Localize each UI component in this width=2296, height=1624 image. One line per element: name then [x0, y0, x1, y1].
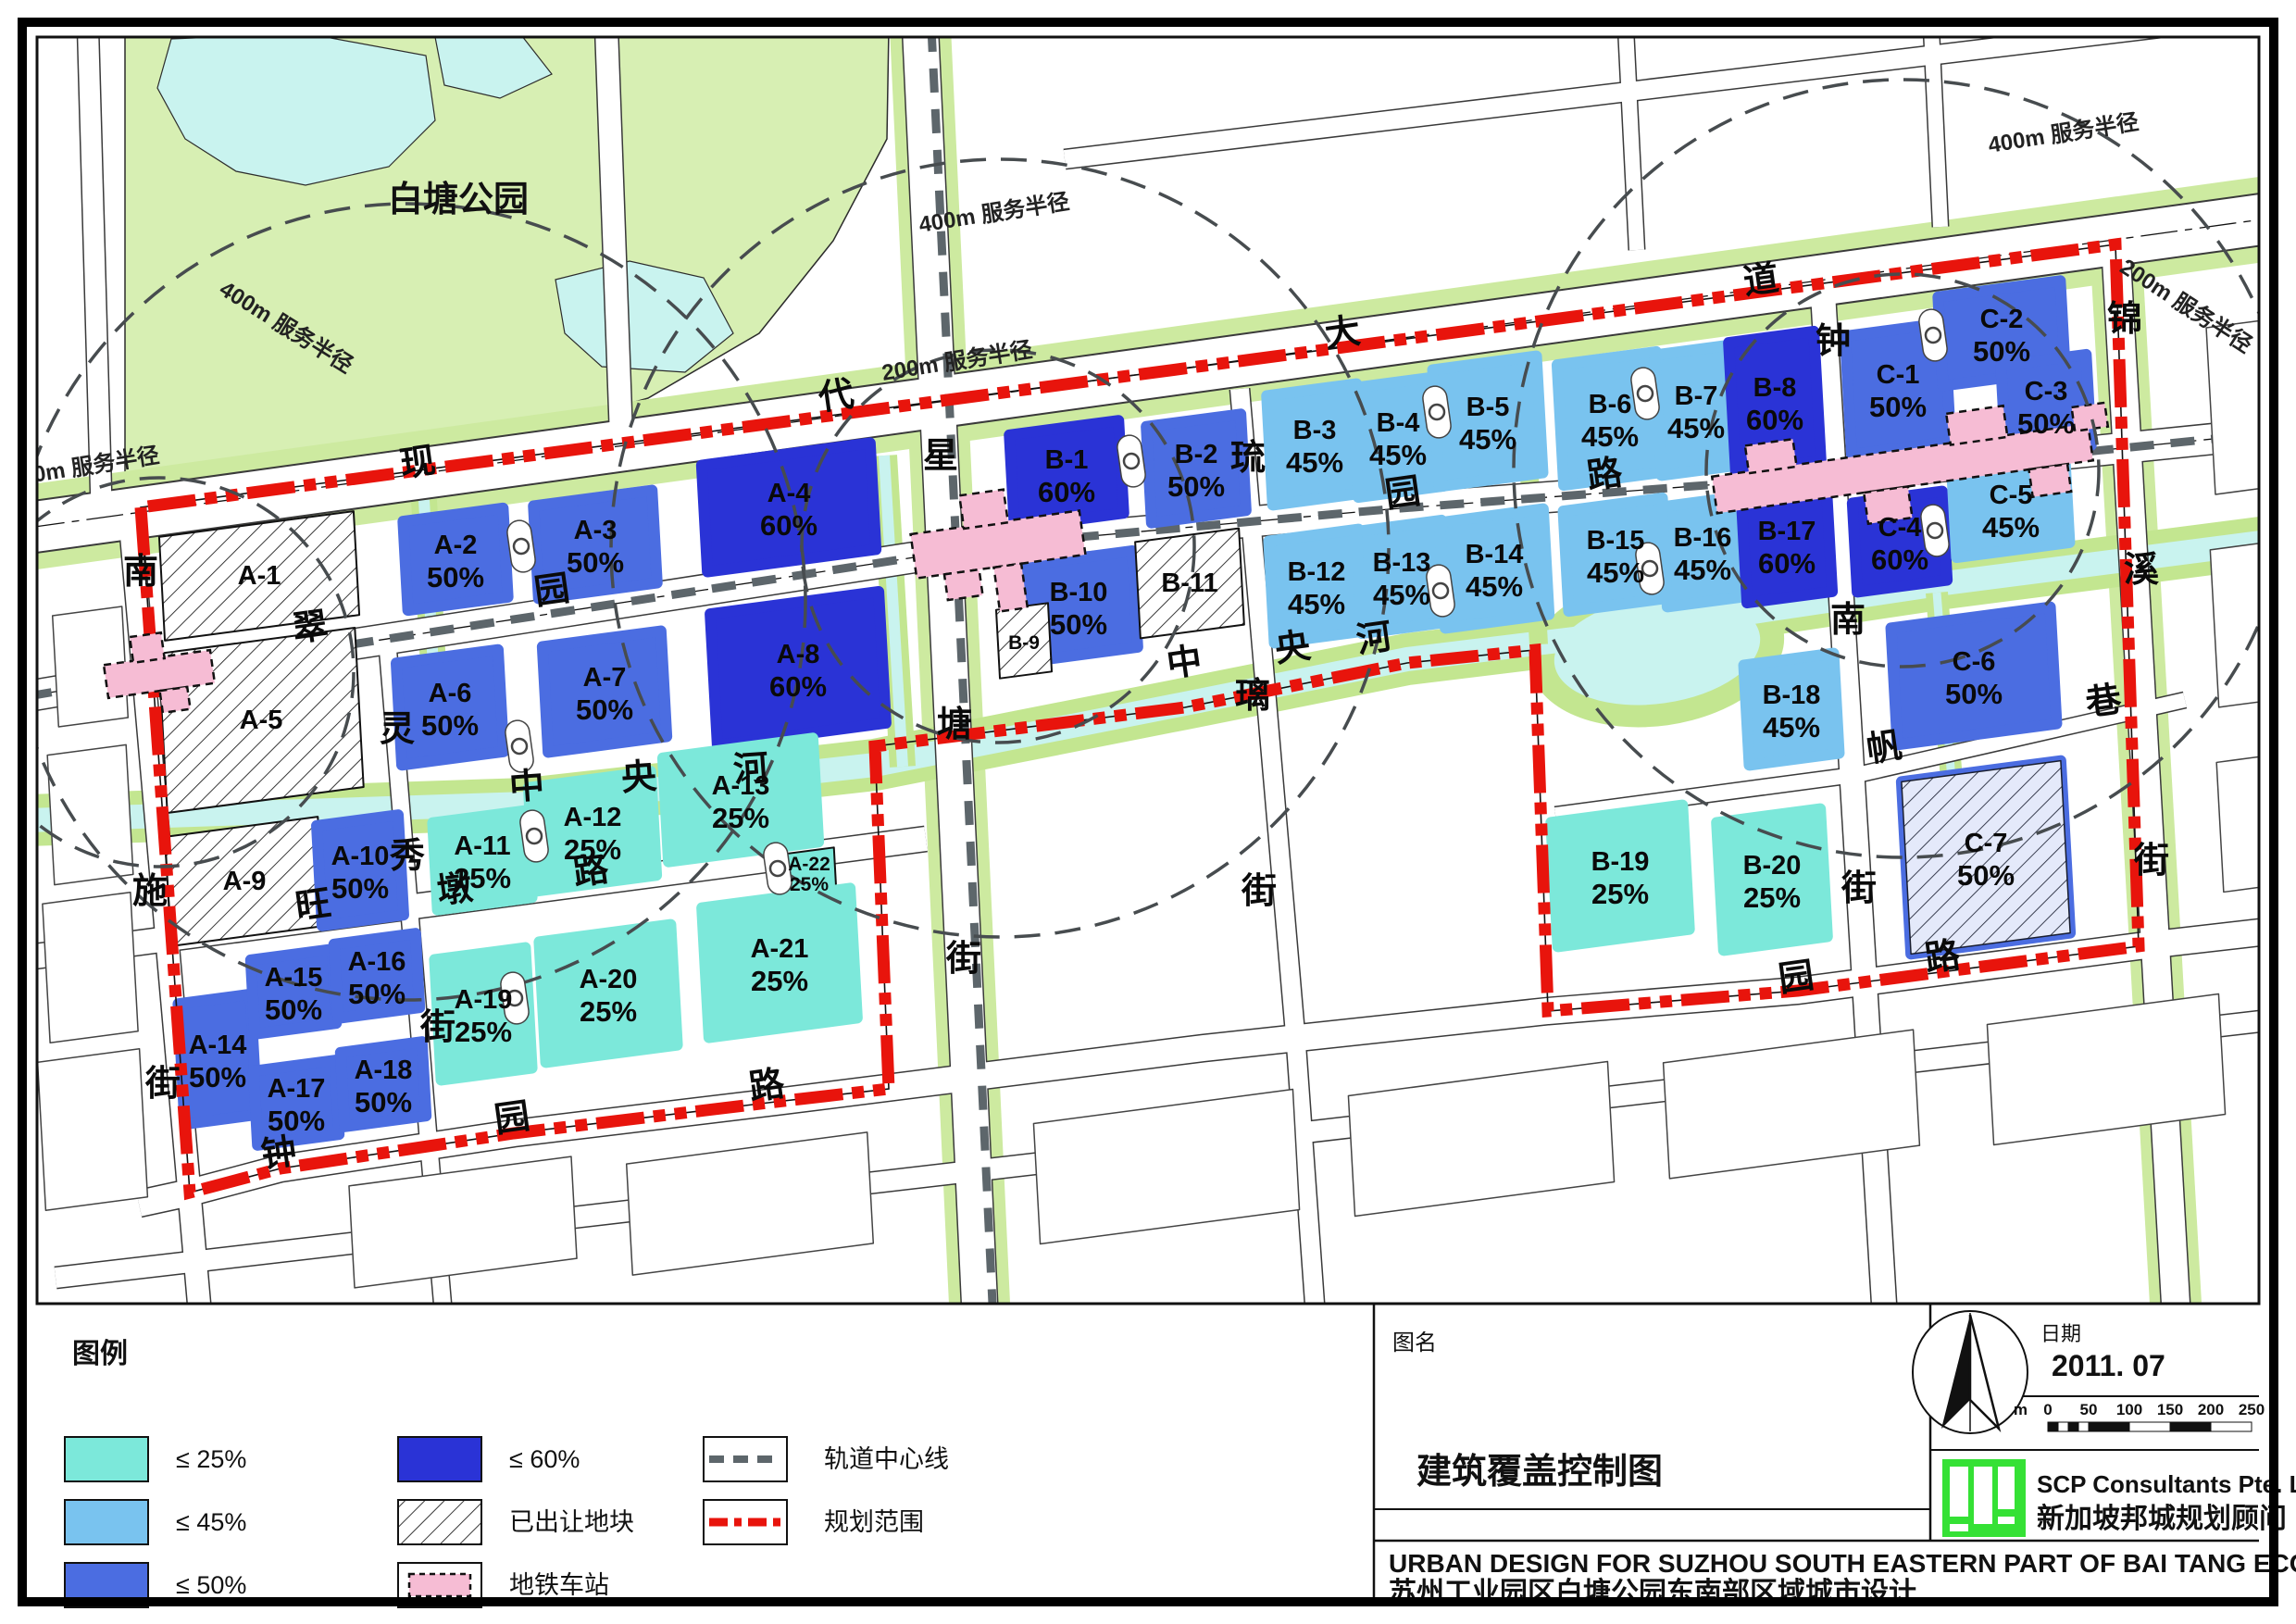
street-label-钟园路: 园	[1777, 956, 1816, 1000]
parcel-label-A-6: A-6	[429, 679, 472, 708]
parcel-label-A-5: A-5	[240, 706, 283, 735]
parcel-label-A-8: A-8	[777, 640, 820, 669]
legend-item-rail: 轨道中心线	[704, 1437, 949, 1481]
street-label-钟园路: 路	[1923, 936, 1964, 980]
legend-label-p50: ≤ 50%	[176, 1571, 246, 1599]
parcel-label-A-20: A-20	[580, 965, 638, 994]
scp-logo	[1942, 1459, 2026, 1537]
parcel-coverage-A-16: 50%	[348, 978, 406, 1010]
parcel-label-B-7: B-7	[1675, 381, 1718, 411]
legend-label-p45: ≤ 45%	[176, 1508, 246, 1536]
north-arrow-icon	[1913, 1311, 2028, 1433]
parcel-coverage-B-1: 60%	[1038, 476, 1095, 508]
parcel-coverage-B-20: 25%	[1743, 881, 1801, 914]
parcel-label-B-17: B-17	[1758, 517, 1816, 546]
street-label-中央河: 央	[1273, 627, 1314, 670]
parcel-coverage-B-7: 45%	[1667, 412, 1725, 444]
street-label-星塘街: 塘	[937, 706, 972, 744]
legend-item-p25: ≤ 25%	[65, 1437, 246, 1481]
parcel-label-B-9: B-9	[1008, 632, 1040, 654]
parcel-coverage-B-17: 60%	[1758, 547, 1816, 580]
parcel-coverage-C-2: 50%	[1973, 335, 2030, 368]
parcel-label-A-3: A-3	[574, 516, 618, 545]
parcel-coverage-B-3: 45%	[1286, 446, 1343, 479]
street-label-灵秀街: 街	[419, 1008, 455, 1047]
street-label-琉璃街: 璃	[1235, 677, 1270, 716]
parcel-coverage-B-10: 50%	[1050, 608, 1107, 641]
parcel-coverage-C-7: 50%	[1957, 859, 2015, 892]
parcel-label-A-7: A-7	[583, 663, 627, 693]
parcel-coverage-B-13: 45%	[1373, 579, 1430, 611]
parcel-label-B-8: B-8	[1753, 373, 1797, 403]
street-label-琉璃街: 街	[1241, 872, 1277, 911]
parcel-label-C-5: C-5	[1990, 481, 2033, 510]
parcel-coverage-B-18: 45%	[1763, 711, 1820, 743]
parcel-label-A-14: A-14	[189, 1031, 247, 1060]
parcel-coverage-C-6: 50%	[1945, 678, 2003, 710]
parcel-coverage-A-13: 25%	[712, 802, 769, 834]
parcel-coverage-A-7: 50%	[576, 693, 633, 726]
parcel-label-C-4: C-4	[1878, 513, 1922, 543]
legend-label-p25: ≤ 25%	[176, 1445, 246, 1473]
legend-label-metro: 地铁车站	[509, 1571, 609, 1599]
company-en: SCP Consultants Pte. Ltd.	[2037, 1470, 2296, 1498]
parcel-label-B-13: B-13	[1373, 548, 1431, 578]
legend-item-sold: 已出让地块	[398, 1500, 634, 1544]
street-label-灵秀街: 灵	[380, 710, 415, 749]
street-label-钟南街: 钟	[1816, 322, 1851, 361]
street-label-钟南街: 南	[1830, 601, 1865, 640]
parcel-label-B-14: B-14	[1466, 540, 1524, 569]
parcel-coverage-A-19: 25%	[455, 1016, 512, 1048]
scale-tick: 250	[2239, 1401, 2265, 1418]
parcel-coverage-A-15: 50%	[265, 993, 322, 1026]
street-label-旺墩路: 旺	[293, 884, 333, 928]
parcel-coverage-A-22: 25%	[790, 874, 829, 895]
parcel-label-B-10: B-10	[1050, 578, 1108, 607]
parcel-label-A-1: A-1	[238, 561, 281, 591]
parcel-coverage-B-14: 45%	[1466, 570, 1523, 603]
bottom-panel: 图例 ≤ 25%≤ 45%≤ 50%≤ 60%已出让地块地铁车站轨道中心线规划范…	[65, 1304, 2296, 1608]
legend-item-scope: 规划范围	[704, 1500, 924, 1544]
scale-unit: m	[2014, 1401, 2028, 1418]
date-value: 2011. 07	[2052, 1349, 2165, 1382]
scale-tick: 0	[2043, 1401, 2052, 1418]
legend-label-scope: 规划范围	[824, 1508, 924, 1536]
street-label-中央河: 中	[1165, 642, 1204, 685]
parcel-coverage-C-1: 50%	[1869, 391, 1927, 423]
parcel-label-A-9: A-9	[223, 867, 267, 896]
parcel-coverage-A-8: 60%	[769, 670, 827, 703]
street-label-星塘街: 星	[923, 437, 958, 476]
titleblock-label: 图名	[1392, 1330, 1437, 1355]
unplanned-block	[38, 1049, 148, 1211]
scale-tick: 200	[2198, 1401, 2224, 1418]
parcel-coverage-A-3: 50%	[567, 546, 624, 579]
scale-tick: 50	[2080, 1401, 2098, 1418]
parcel-coverage-C-3: 50%	[2017, 407, 2075, 440]
street-label-帆巷: 帆	[1865, 727, 1904, 770]
street-label-星塘街: 街	[945, 940, 981, 979]
scale-tick: 100	[2116, 1401, 2142, 1418]
drawing-title: 建筑覆盖控制图	[1416, 1453, 1663, 1492]
street-label-中央河: 中	[508, 767, 546, 808]
street-label-钟园路: 路	[747, 1065, 788, 1108]
parcel-label-A-15: A-15	[265, 963, 323, 993]
parcel-coverage-A-21: 25%	[751, 965, 808, 997]
legend-label-sold: 已出让地块	[509, 1508, 634, 1536]
parcel-label-B-19: B-19	[1591, 847, 1650, 877]
street-label-南施街: 南	[123, 553, 158, 592]
unplanned-block	[43, 893, 138, 1043]
street-label-南施街: 街	[144, 1065, 181, 1104]
street-label-现代大道: 现	[398, 442, 438, 485]
parcel-label-B-5: B-5	[1466, 393, 1510, 422]
parcel-label-A-13: A-13	[712, 771, 770, 801]
parcel-coverage-B-8: 60%	[1746, 404, 1803, 436]
parcel-coverage-A-20: 25%	[580, 995, 637, 1028]
parcel-coverage-B-2: 50%	[1167, 470, 1225, 503]
parcel-label-B-11: B-11	[1161, 568, 1217, 598]
street-label-帆巷: 巷	[2084, 681, 2125, 724]
parcel-coverage-B-5: 45%	[1459, 423, 1516, 456]
date-label: 日期	[2040, 1322, 2081, 1345]
street-label-琉璃街: 琉	[1230, 439, 1266, 478]
street-label-现代大道: 道	[1741, 259, 1781, 303]
map-canvas: 现代大道翠园园路旺墩路钟园路园路南施街灵秀街星塘街琉璃街钟南街帆巷锦溪街中央河中…	[0, 0, 2296, 1624]
parcel-label-B-1: B-1	[1045, 445, 1089, 475]
parcel-coverage-B-19: 25%	[1591, 878, 1649, 910]
street-label-钟园路: 钟	[259, 1132, 299, 1176]
legend-title: 图例	[72, 1339, 128, 1369]
unplanned-block	[2210, 543, 2272, 707]
legend-label-rail: 轨道中心线	[824, 1445, 949, 1473]
parcel-label-A-19: A-19	[455, 985, 513, 1015]
parcel-label-C-1: C-1	[1877, 360, 1920, 390]
parcel-coverage-B-15: 45%	[1587, 556, 1644, 589]
parcel-label-C-2: C-2	[1980, 305, 2024, 334]
street-label-锦溪街: 溪	[2124, 551, 2159, 590]
parcel-label-B-18: B-18	[1763, 681, 1821, 710]
parcel-coverage-A-17: 50%	[268, 1105, 325, 1137]
parcel-coverage-A-18: 50%	[355, 1086, 412, 1118]
parcel-coverage-A-10: 50%	[331, 872, 389, 905]
unplanned-block	[2216, 756, 2272, 893]
parcel-coverage-A-11: 25%	[454, 862, 511, 894]
parcel-label-A-21: A-21	[751, 934, 809, 964]
legend-item-p45: ≤ 45%	[65, 1500, 246, 1544]
street-label-现代大道: 大	[1323, 312, 1363, 356]
map-area: 现代大道翠园园路旺墩路钟园路园路南施街灵秀街星塘街琉璃街钟南街帆巷锦溪街中央河中…	[0, 15, 2291, 1304]
street-label-锦溪街: 锦	[2107, 300, 2142, 339]
parcel-coverage-C-4: 60%	[1871, 543, 1928, 576]
parcel-label-B-16: B-16	[1674, 523, 1732, 553]
parcel-label-A-4: A-4	[767, 479, 811, 508]
parcel-label-A-11: A-11	[454, 831, 510, 861]
parcel-label-B-15: B-15	[1587, 526, 1645, 556]
parcel-label-B-12: B-12	[1288, 557, 1346, 587]
street-label-灵秀街: 秀	[389, 837, 425, 876]
parcel-label-A-18: A-18	[355, 1056, 413, 1085]
parcel-coverage-B-12: 45%	[1288, 588, 1345, 620]
drawing-sheet: 现代大道翠园园路旺墩路钟园路园路南施街灵秀街星塘街琉璃街钟南街帆巷锦溪街中央河中…	[0, 0, 2296, 1624]
street-label-南施街: 施	[132, 872, 168, 911]
scale-bar: m050100150200250	[2014, 1401, 2265, 1431]
legend-label-p60: ≤ 60%	[509, 1445, 580, 1473]
street-label-翠园路: 路	[1585, 454, 1626, 497]
street-label-现代大道: 代	[817, 375, 856, 418]
parcel-label-C-7: C-7	[1965, 829, 2008, 858]
parcel-label-A-22: A-22	[788, 854, 830, 875]
parcel-coverage-C-5: 45%	[1982, 511, 2040, 543]
parcel-label-B-4: B-4	[1377, 408, 1420, 438]
parcel-coverage-B-16: 45%	[1674, 554, 1731, 586]
street-label-钟南街: 街	[1841, 869, 1877, 908]
parcel-label-A-10: A-10	[331, 842, 390, 871]
parcel-label-B-2: B-2	[1175, 440, 1218, 469]
project-en: URBAN DESIGN FOR SUZHOU SOUTH EASTERN PA…	[1389, 1549, 2296, 1578]
parcel-label-A-16: A-16	[348, 947, 406, 977]
parcel-label-C-6: C-6	[1953, 647, 1996, 677]
parcel-label-B-3: B-3	[1293, 416, 1337, 445]
parcel-label-A-12: A-12	[564, 803, 622, 832]
street-label-中央河: 河	[1354, 618, 1394, 661]
legend-item-p60: ≤ 60%	[398, 1437, 580, 1481]
street-label-锦溪街: 街	[2133, 842, 2169, 881]
parcel-coverage-B-6: 45%	[1581, 420, 1639, 453]
parcel-label-B-6: B-6	[1589, 390, 1632, 419]
parcel-label-A-2: A-2	[434, 531, 478, 560]
parcel-coverage-B-4: 45%	[1369, 439, 1427, 471]
parcel-coverage-A-6: 50%	[421, 709, 479, 742]
parcel-coverage-A-14: 50%	[189, 1061, 246, 1093]
scale-tick: 150	[2157, 1401, 2183, 1418]
parcel-coverage-A-4: 60%	[760, 509, 817, 542]
park-label: 白塘公园	[388, 181, 529, 219]
parcel-coverage-A-2: 50%	[427, 561, 484, 593]
company-zh: 新加坡邦城规划顾问	[2037, 1504, 2287, 1534]
street-label-钟园路: 园	[493, 1097, 532, 1141]
parcel-coverage-A-12: 25%	[564, 833, 621, 866]
street-label-翠园路: 园	[1383, 472, 1423, 516]
street-label-中央河: 央	[620, 757, 659, 799]
street-label-翠园路: 翠	[291, 606, 331, 650]
parcel-label-A-17: A-17	[268, 1074, 326, 1104]
parcel-label-B-20: B-20	[1743, 851, 1802, 881]
parcel-label-C-3: C-3	[2025, 377, 2068, 406]
